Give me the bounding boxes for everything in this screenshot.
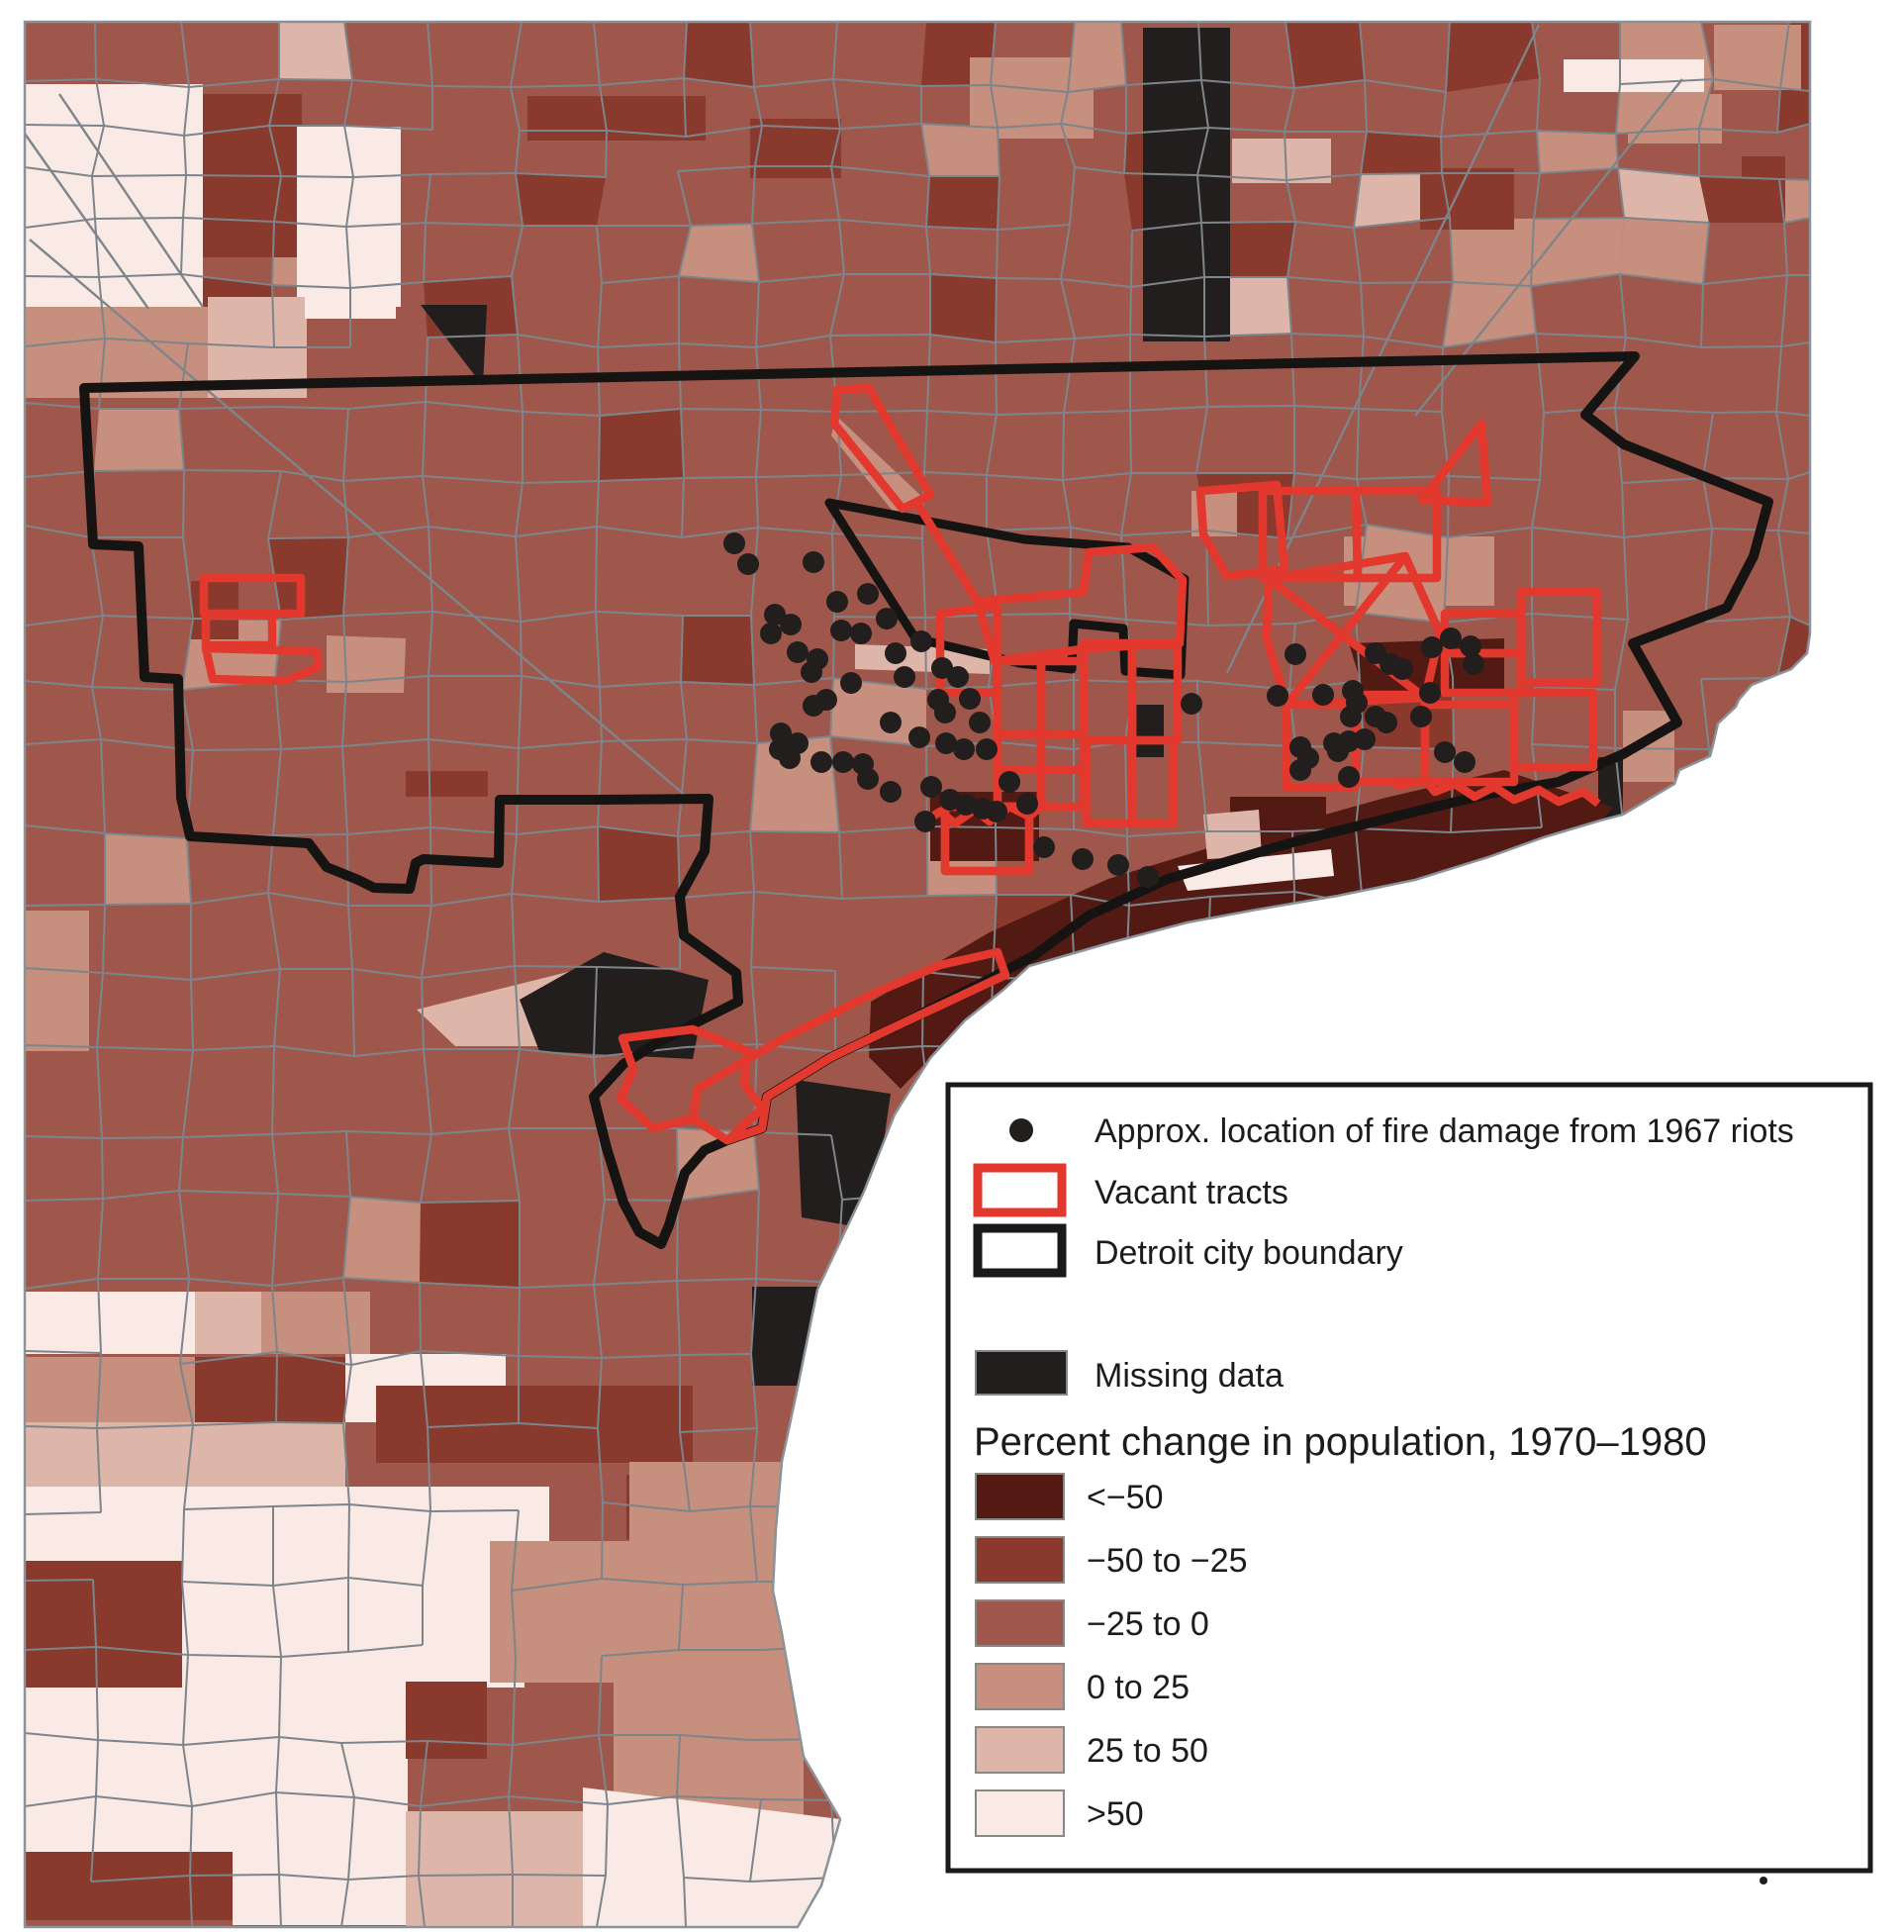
svg-text:Approx. location of fire damag: Approx. location of fire damage from 196… — [1095, 1112, 1794, 1150]
svg-text:<−50: <−50 — [1087, 1479, 1164, 1516]
svg-text:Detroit city boundary: Detroit city boundary — [1095, 1234, 1403, 1272]
svg-text:>50: >50 — [1087, 1795, 1144, 1833]
svg-text:−25 to 0: −25 to 0 — [1087, 1605, 1209, 1643]
svg-text:Missing data: Missing data — [1095, 1357, 1284, 1395]
svg-text:Vacant tracts: Vacant tracts — [1095, 1174, 1288, 1211]
svg-text:0 to 25: 0 to 25 — [1087, 1669, 1190, 1706]
svg-text:25 to 50: 25 to 50 — [1087, 1732, 1208, 1770]
svg-text:Percent change in population,: Percent change in population, 1970–1980 — [974, 1420, 1707, 1464]
svg-text:−50 to −25: −50 to −25 — [1087, 1542, 1248, 1580]
